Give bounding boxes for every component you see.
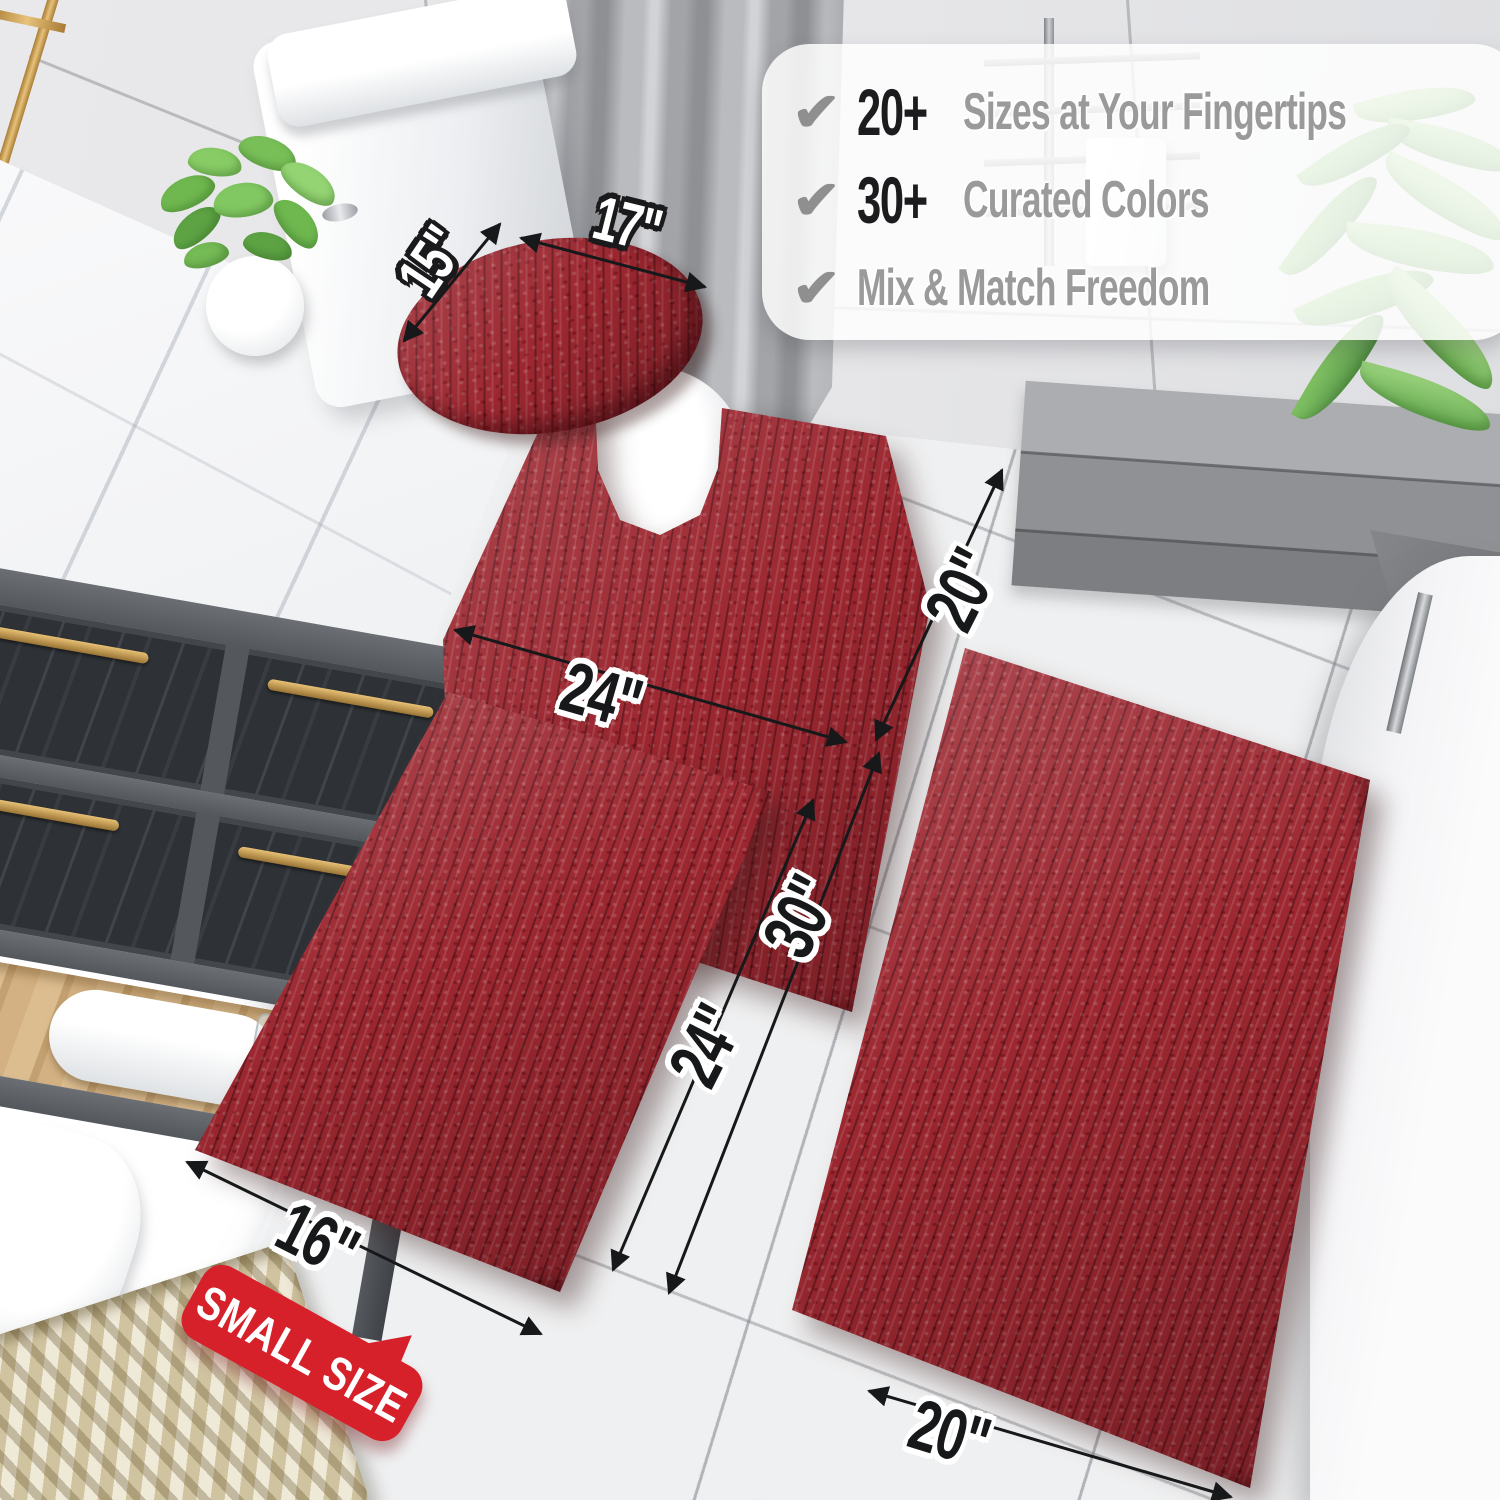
- large-rug: [790, 646, 1370, 1491]
- feature-label: Curated Colors: [963, 170, 1209, 230]
- checkmark-icon: ✔: [792, 81, 841, 144]
- feature-row: ✔ 30+ Curated Colors: [792, 164, 1324, 236]
- checkmark-icon: ✔: [792, 257, 841, 320]
- bench-edge: [1021, 450, 1500, 488]
- large-rug-surface: [790, 646, 1370, 1491]
- small-rug: [192, 690, 772, 1292]
- feature-stat: 30+: [857, 162, 927, 238]
- small-rug-surface: [192, 690, 772, 1292]
- feature-label: Mix & Match Freedom: [857, 258, 1210, 318]
- leaf: [211, 179, 275, 221]
- potted-plant-left: [148, 138, 358, 368]
- feature-stat: 20+: [857, 74, 927, 150]
- feature-overlay-card: ✔ 20+ Sizes at Your Fingertips ✔ 30+ Cur…: [762, 44, 1500, 340]
- plant-pot: [206, 256, 304, 356]
- checkmark-icon: ✔: [792, 169, 841, 232]
- feature-label: Sizes at Your Fingertips: [963, 82, 1346, 142]
- bathroom-product-scene: MISQ: [0, 0, 1500, 1500]
- feature-row: ✔ Mix & Match Freedom: [792, 252, 1375, 324]
- feature-row: ✔ 20+ Sizes at Your Fingertips: [792, 76, 1500, 148]
